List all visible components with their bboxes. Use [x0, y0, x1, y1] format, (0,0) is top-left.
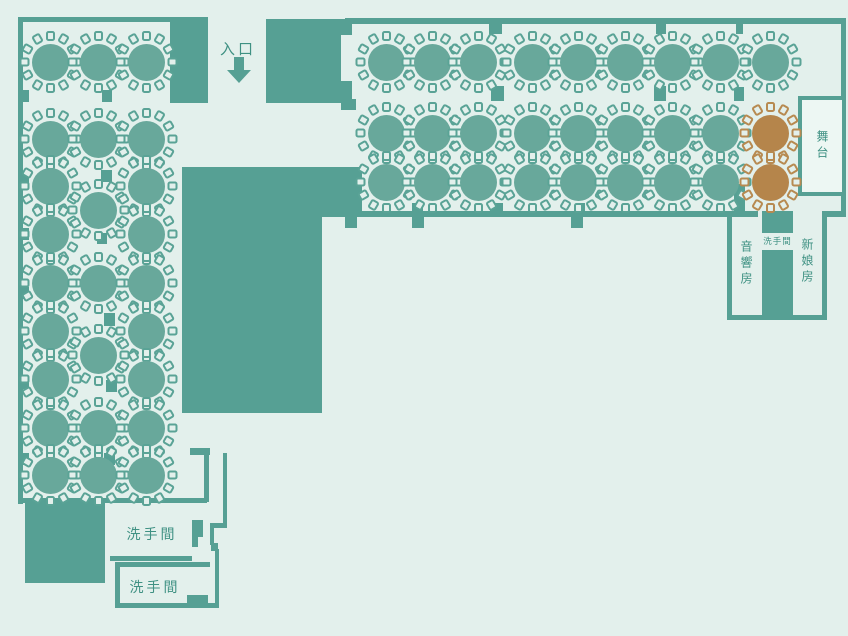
chair: [31, 110, 44, 123]
chair: [94, 397, 103, 407]
chair: [503, 140, 516, 153]
chair: [382, 83, 391, 93]
table-top: [32, 410, 69, 447]
chair: [19, 424, 29, 433]
chair: [79, 110, 92, 123]
chair: [94, 252, 103, 262]
chair: [162, 264, 175, 277]
chair: [689, 129, 699, 138]
chair: [162, 241, 175, 254]
bride-room-label: 新娘房: [801, 238, 813, 286]
chair: [413, 78, 426, 91]
chair: [162, 456, 175, 469]
chair: [162, 360, 175, 373]
table-top: [460, 44, 497, 81]
chair: [401, 58, 411, 67]
chair: [19, 230, 29, 239]
chair: [115, 135, 125, 144]
table-top: [368, 44, 405, 81]
chair: [501, 178, 511, 187]
stage: 舞台: [798, 96, 846, 196]
chair: [57, 33, 70, 46]
table-top: [654, 44, 691, 81]
table-top: [654, 115, 691, 152]
chair: [115, 58, 125, 67]
chair: [94, 324, 103, 334]
wall: [204, 455, 209, 502]
restroom-back-label: 洗手間: [756, 235, 799, 247]
chair: [777, 104, 790, 117]
chair: [19, 182, 29, 191]
chair: [503, 114, 516, 127]
chair: [57, 110, 70, 123]
chair: [574, 102, 583, 112]
chair: [528, 31, 537, 41]
chair: [739, 129, 749, 138]
chair: [679, 33, 692, 46]
chair: [367, 104, 380, 117]
chair: [105, 399, 118, 412]
wall: [727, 217, 732, 315]
chair: [777, 198, 790, 211]
chair: [357, 43, 370, 56]
chair: [142, 397, 151, 407]
chair: [19, 327, 29, 336]
chair: [474, 31, 483, 41]
chair: [528, 83, 537, 93]
chair: [459, 33, 472, 46]
chair: [679, 104, 692, 117]
chair: [474, 83, 483, 93]
table-top: [654, 164, 691, 201]
chair: [439, 198, 452, 211]
chair: [19, 375, 29, 384]
chair: [539, 78, 552, 91]
wall-notch: [341, 35, 352, 81]
chair: [105, 155, 118, 168]
table-top: [128, 313, 165, 350]
table-top: [80, 265, 117, 302]
chair: [79, 299, 92, 312]
chair: [574, 151, 583, 161]
table-top: [32, 265, 69, 302]
chair: [357, 140, 370, 153]
table-top: [32, 121, 69, 158]
chair: [559, 198, 572, 211]
chair: [142, 252, 151, 262]
pillar: [345, 217, 357, 228]
chair: [393, 33, 406, 46]
wall: [727, 315, 827, 320]
chair: [559, 78, 572, 91]
chair: [67, 206, 77, 215]
chair: [401, 129, 411, 138]
chair: [574, 31, 583, 41]
pillar: [104, 313, 115, 326]
chair: [115, 375, 125, 384]
entrance-arrow-icon: [227, 70, 251, 83]
wall: [115, 603, 219, 608]
chair: [528, 151, 537, 161]
chair: [716, 102, 725, 112]
table-top: [80, 192, 117, 229]
table-top: [32, 457, 69, 494]
banquet-floor-plan: 舞台 洗手間 音響房 新娘房 入口 洗手間 洗手間: [0, 0, 848, 636]
chair: [428, 83, 437, 93]
restroom-1-label: 洗手間: [108, 524, 196, 544]
chair: [791, 129, 801, 138]
chair: [513, 78, 526, 91]
table-top: [607, 44, 644, 81]
chair: [766, 102, 775, 112]
chair: [167, 327, 177, 336]
chair: [621, 102, 630, 112]
central-block-band: [182, 167, 362, 212]
chair: [547, 129, 557, 138]
wall: [210, 523, 214, 545]
chair: [19, 471, 29, 480]
chair: [393, 78, 406, 91]
table-top: [128, 121, 165, 158]
chair: [153, 110, 166, 123]
chair: [115, 327, 125, 336]
chair: [46, 203, 55, 213]
chair: [367, 33, 380, 46]
table-top: [560, 115, 597, 152]
chair: [142, 300, 151, 310]
chair: [94, 231, 103, 241]
chair: [142, 444, 151, 454]
chair: [447, 129, 457, 138]
table-top: [702, 44, 739, 81]
chair: [777, 33, 790, 46]
chair: [459, 78, 472, 91]
chair: [585, 78, 598, 91]
chair: [668, 203, 677, 213]
wall-block: [762, 250, 793, 315]
chair: [739, 178, 749, 187]
wall: [190, 448, 210, 455]
chair: [105, 254, 118, 267]
table-top: [32, 361, 69, 398]
chair: [162, 120, 175, 133]
chair: [632, 104, 645, 117]
chair: [67, 58, 77, 67]
chair: [142, 155, 151, 165]
chair: [31, 78, 44, 91]
chair: [766, 83, 775, 93]
chair: [632, 33, 645, 46]
chair: [153, 78, 166, 91]
chair: [117, 312, 130, 325]
chair: [459, 198, 472, 211]
chair: [94, 160, 103, 170]
chair: [31, 33, 44, 46]
chair: [167, 135, 177, 144]
chair: [501, 58, 511, 67]
chair: [46, 108, 55, 118]
chair: [791, 58, 801, 67]
chair: [79, 399, 92, 412]
chair: [528, 203, 537, 213]
chair: [766, 203, 775, 213]
table-top: [414, 44, 451, 81]
chair: [727, 33, 740, 46]
chair: [162, 215, 175, 228]
stage-label: 舞台: [816, 130, 828, 162]
chair: [19, 279, 29, 288]
chair: [485, 33, 498, 46]
chair: [167, 471, 177, 480]
table-top: [514, 44, 551, 81]
chair: [606, 104, 619, 117]
chair: [447, 178, 457, 187]
chair: [357, 114, 370, 127]
chair: [559, 104, 572, 117]
chair: [355, 178, 365, 187]
chair: [67, 471, 77, 480]
chair: [367, 78, 380, 91]
chair: [355, 129, 365, 138]
chair: [167, 375, 177, 384]
chair: [739, 58, 749, 67]
chair: [94, 496, 103, 506]
chair: [439, 104, 452, 117]
chair: [115, 424, 125, 433]
chair: [79, 181, 92, 194]
table-top: [32, 168, 69, 205]
chair: [539, 198, 552, 211]
wall: [115, 562, 210, 567]
chair: [167, 182, 177, 191]
chair: [701, 78, 714, 91]
table-top: [128, 265, 165, 302]
chair: [94, 31, 103, 41]
chair: [513, 33, 526, 46]
table-top: [702, 164, 739, 201]
chair: [142, 108, 151, 118]
wall-block: [266, 19, 352, 103]
chair: [791, 178, 801, 187]
chair: [428, 102, 437, 112]
chair: [79, 78, 92, 91]
table-top: [80, 44, 117, 81]
entrance-label: 入口: [210, 38, 266, 59]
chair: [105, 110, 118, 123]
chair: [127, 33, 140, 46]
chair: [547, 178, 557, 187]
chair: [19, 58, 29, 67]
chair: [162, 386, 175, 399]
chair: [653, 33, 666, 46]
chair: [67, 351, 77, 360]
chair: [786, 69, 799, 82]
chair: [105, 33, 118, 46]
chair: [513, 104, 526, 117]
wall: [345, 18, 846, 24]
chair: [162, 312, 175, 325]
chair: [46, 300, 55, 310]
chair: [485, 104, 498, 117]
chair: [474, 203, 483, 213]
chair: [162, 482, 175, 495]
chair: [142, 348, 151, 358]
chair: [585, 198, 598, 211]
chair: [115, 182, 125, 191]
chair: [632, 198, 645, 211]
chair: [142, 496, 151, 506]
chair: [382, 151, 391, 161]
chair: [401, 178, 411, 187]
chair: [67, 424, 77, 433]
table-top: [752, 115, 789, 152]
table-top: [80, 457, 117, 494]
table-top: [128, 168, 165, 205]
table-top: [32, 313, 69, 350]
chair: [594, 129, 604, 138]
chair: [46, 397, 55, 407]
chair: [162, 290, 175, 303]
chair: [162, 435, 175, 448]
chair: [127, 78, 140, 91]
chair: [632, 78, 645, 91]
chair: [716, 31, 725, 41]
wall-block: [341, 99, 356, 110]
chair: [668, 151, 677, 161]
chair: [66, 312, 79, 325]
chair: [606, 78, 619, 91]
table-top: [460, 164, 497, 201]
chair: [94, 304, 103, 314]
chair: [766, 151, 775, 161]
wall: [215, 549, 219, 603]
chair: [117, 386, 130, 399]
chair: [382, 102, 391, 112]
chair: [547, 58, 557, 67]
chair: [67, 279, 77, 288]
chair: [94, 376, 103, 386]
chair: [115, 471, 125, 480]
table-top: [514, 164, 551, 201]
chair: [79, 155, 92, 168]
chair: [46, 31, 55, 41]
table-top: [752, 44, 789, 81]
chair: [162, 193, 175, 206]
chair: [621, 31, 630, 41]
pillar: [736, 24, 743, 34]
wall: [110, 556, 192, 561]
chair: [447, 58, 457, 67]
chair: [79, 326, 92, 339]
chair: [751, 78, 764, 91]
table-top: [128, 410, 165, 447]
table-top: [368, 164, 405, 201]
chair: [539, 33, 552, 46]
chair: [503, 69, 516, 82]
table-top: [128, 216, 165, 253]
chair: [503, 43, 516, 56]
chair: [142, 83, 151, 93]
chair: [46, 444, 55, 454]
chair: [115, 279, 125, 288]
chair: [382, 203, 391, 213]
chair: [46, 348, 55, 358]
chair: [94, 108, 103, 118]
chair: [79, 33, 92, 46]
table-top: [128, 457, 165, 494]
table-top: [607, 115, 644, 152]
chair: [428, 31, 437, 41]
chair: [57, 78, 70, 91]
table-top: [560, 164, 597, 201]
chair: [668, 102, 677, 112]
chair: [585, 104, 598, 117]
chair: [94, 444, 103, 454]
chair: [574, 83, 583, 93]
pillar: [102, 90, 112, 102]
pillar: [412, 217, 424, 228]
chair: [641, 178, 651, 187]
chair: [393, 104, 406, 117]
table-top: [607, 164, 644, 201]
table-top: [414, 115, 451, 152]
chair: [689, 178, 699, 187]
chair: [701, 198, 714, 211]
chair: [474, 102, 483, 112]
chair: [413, 33, 426, 46]
table-top: [460, 115, 497, 152]
chair: [67, 135, 77, 144]
chair: [679, 198, 692, 211]
chair: [459, 104, 472, 117]
table-top: [702, 115, 739, 152]
table-top: [128, 361, 165, 398]
table-top: [560, 44, 597, 81]
chair: [727, 104, 740, 117]
chair: [716, 151, 725, 161]
audio-room-label: 音響房: [740, 240, 752, 288]
entrance-arrow-icon: [234, 57, 244, 70]
chair: [162, 146, 175, 159]
chair: [668, 83, 677, 93]
chair: [689, 58, 699, 67]
table-top: [368, 115, 405, 152]
chair: [574, 203, 583, 213]
chair: [585, 33, 598, 46]
chair: [153, 33, 166, 46]
chair: [501, 129, 511, 138]
chair: [94, 179, 103, 189]
chair: [503, 163, 516, 176]
chair: [46, 252, 55, 262]
chair: [66, 241, 79, 254]
chair: [751, 33, 764, 46]
chair: [539, 104, 552, 117]
chair: [653, 104, 666, 117]
chair: [117, 167, 130, 180]
chair: [162, 167, 175, 180]
chair: [94, 83, 103, 93]
chair: [701, 104, 714, 117]
table-top: [514, 115, 551, 152]
chair: [439, 33, 452, 46]
chair: [621, 83, 630, 93]
chair: [393, 198, 406, 211]
chair: [46, 155, 55, 165]
chair: [653, 198, 666, 211]
chair: [594, 58, 604, 67]
chair: [66, 167, 79, 180]
